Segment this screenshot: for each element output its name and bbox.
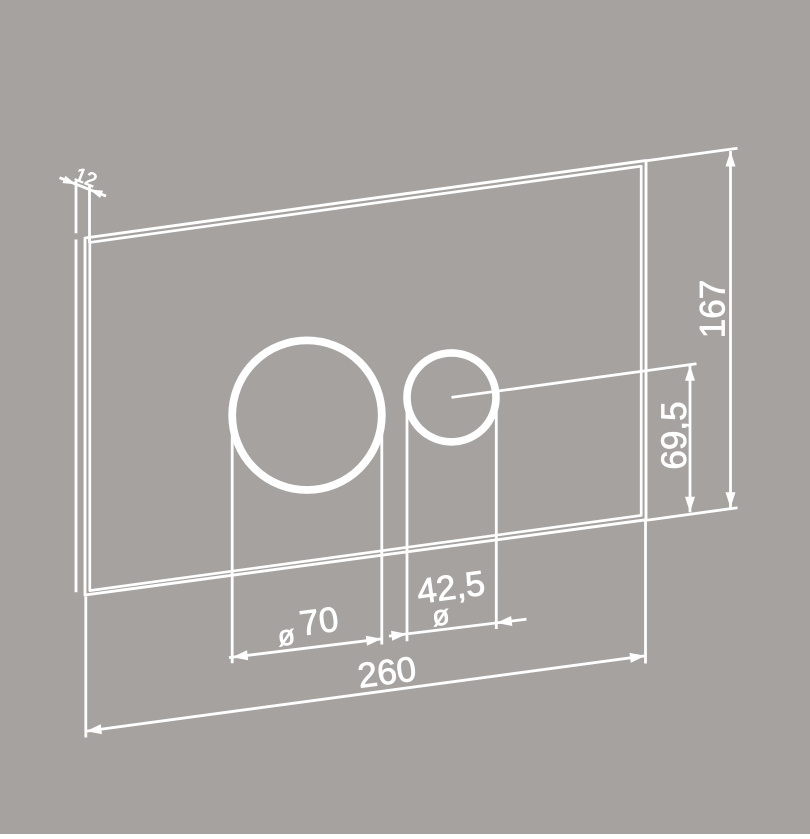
- svg-text:167: 167: [694, 280, 733, 338]
- svg-text:260: 260: [355, 649, 418, 695]
- svg-text:70: 70: [297, 600, 341, 644]
- svg-text:69,5: 69,5: [655, 401, 694, 469]
